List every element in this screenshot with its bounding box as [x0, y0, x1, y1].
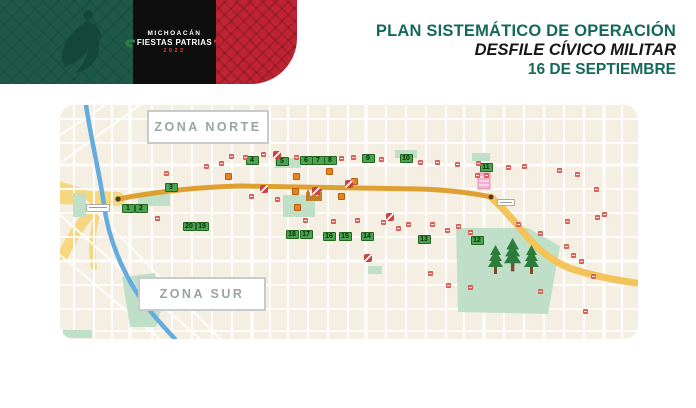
security-point-marker	[326, 168, 333, 175]
event-title: DESFILE CÍVICO MILITAR	[376, 41, 676, 60]
route-marker-20: 20	[183, 222, 196, 231]
security-point-marker	[294, 204, 301, 211]
route-marker-3: 3	[165, 183, 178, 192]
security-point-marker	[293, 173, 300, 180]
brand-year: 2023	[123, 48, 226, 55]
route-marker-18: 18	[286, 230, 299, 239]
checkpoint-marker	[557, 168, 562, 173]
route-marker-1: 1	[122, 204, 135, 213]
road-closure-marker	[312, 187, 320, 195]
checkpoint-marker	[379, 157, 384, 162]
checkpoint-marker	[229, 154, 234, 159]
checkpoint-marker	[579, 259, 584, 264]
route-marker-6: 6	[300, 156, 313, 165]
checkpoint-marker	[303, 218, 308, 223]
route-marker-2: 2	[135, 204, 148, 213]
checkpoint-marker	[155, 216, 160, 221]
marker-layer: 1234567891011121314151617181920	[60, 105, 638, 339]
date-title: 16 DE SEPTIEMBRE	[376, 60, 676, 79]
ribbon-left-icon	[123, 38, 135, 48]
checkpoint-marker	[435, 160, 440, 165]
checkpoint-marker	[396, 226, 401, 231]
checkpoint-marker	[522, 164, 527, 169]
checkpoint-marker	[456, 224, 461, 229]
road-closure-marker	[260, 185, 268, 193]
dancer-silhouette-icon	[52, 6, 112, 80]
checkpoint-marker	[294, 155, 299, 160]
header-green-panel	[0, 0, 133, 84]
route-marker-11: 11	[480, 163, 493, 172]
checkpoint-marker	[331, 219, 336, 224]
checkpoint-marker	[468, 230, 473, 235]
checkpoint-marker	[418, 160, 423, 165]
checkpoint-marker	[538, 231, 543, 236]
route-marker-15: 15	[339, 232, 352, 241]
checkpoint-marker	[468, 285, 473, 290]
checkpoint-marker	[381, 220, 386, 225]
route-marker-13: 13	[418, 235, 431, 244]
checkpoint-marker	[575, 172, 580, 177]
checkpoint-marker	[406, 222, 411, 227]
brand-event: FIESTAS PATRIAS	[137, 38, 212, 48]
route-marker-17: 17	[300, 230, 313, 239]
security-point-marker	[292, 188, 299, 195]
checkpoint-marker	[339, 156, 344, 161]
checkpoint-marker	[475, 173, 480, 178]
city-map: ZONA NORTE ZONA SUR 12345678910111213141…	[60, 105, 638, 339]
checkpoint-marker	[594, 187, 599, 192]
route-marker-12: 12	[471, 236, 484, 245]
route-marker-16: 16	[323, 232, 336, 241]
checkpoint-marker	[571, 253, 576, 258]
checkpoint-marker	[455, 162, 460, 167]
route-marker-19: 19	[196, 222, 209, 231]
route-marker-9: 9	[362, 154, 375, 163]
plan-title: PLAN SISTEMÁTICO DE OPERACIÓN	[376, 22, 676, 41]
checkpoint-marker	[351, 155, 356, 160]
road-closure-marker	[364, 254, 372, 262]
checkpoint-marker	[219, 161, 224, 166]
route-marker-7: 7	[312, 156, 325, 165]
checkpoint-marker	[261, 152, 266, 157]
checkpoint-marker	[595, 215, 600, 220]
header-logo-panel: MICHOACÁN FIESTAS PATRIAS 2023	[133, 0, 216, 84]
road-closure-marker	[345, 180, 353, 188]
header-titles: PLAN SISTEMÁTICO DE OPERACIÓN DESFILE CÍ…	[376, 22, 676, 79]
route-marker-14: 14	[361, 232, 374, 241]
checkpoint-marker	[602, 212, 607, 217]
checkpoint-marker	[204, 164, 209, 169]
checkpoint-marker	[564, 244, 569, 249]
checkpoint-marker	[430, 222, 435, 227]
checkpoint-marker	[476, 161, 481, 166]
checkpoint-marker	[275, 197, 280, 202]
checkpoint-marker	[538, 289, 543, 294]
brand-logo: MICHOACÁN FIESTAS PATRIAS 2023	[123, 30, 226, 55]
checkpoint-marker	[243, 155, 248, 160]
security-point-marker	[338, 193, 345, 200]
security-point-marker	[225, 173, 232, 180]
poster: MICHOACÁN FIESTAS PATRIAS 2023 PLAN SIST…	[0, 0, 696, 408]
checkpoint-marker	[446, 283, 451, 288]
road-closure-marker	[273, 151, 281, 159]
route-marker-10: 10	[400, 154, 413, 163]
route-marker-8: 8	[324, 156, 337, 165]
road-closure-marker	[386, 213, 394, 221]
checkpoint-marker	[516, 222, 521, 227]
checkpoint-marker	[565, 219, 570, 224]
checkpoint-marker	[591, 274, 596, 279]
header-red-panel	[216, 0, 297, 84]
checkpoint-marker	[445, 228, 450, 233]
checkpoint-marker	[355, 218, 360, 223]
brand-region: MICHOACÁN	[123, 30, 226, 38]
checkpoint-marker	[164, 171, 169, 176]
checkpoint-marker	[583, 309, 588, 314]
checkpoint-marker	[484, 173, 489, 178]
checkpoint-marker	[249, 194, 254, 199]
checkpoint-marker	[506, 165, 511, 170]
checkpoint-marker	[428, 271, 433, 276]
